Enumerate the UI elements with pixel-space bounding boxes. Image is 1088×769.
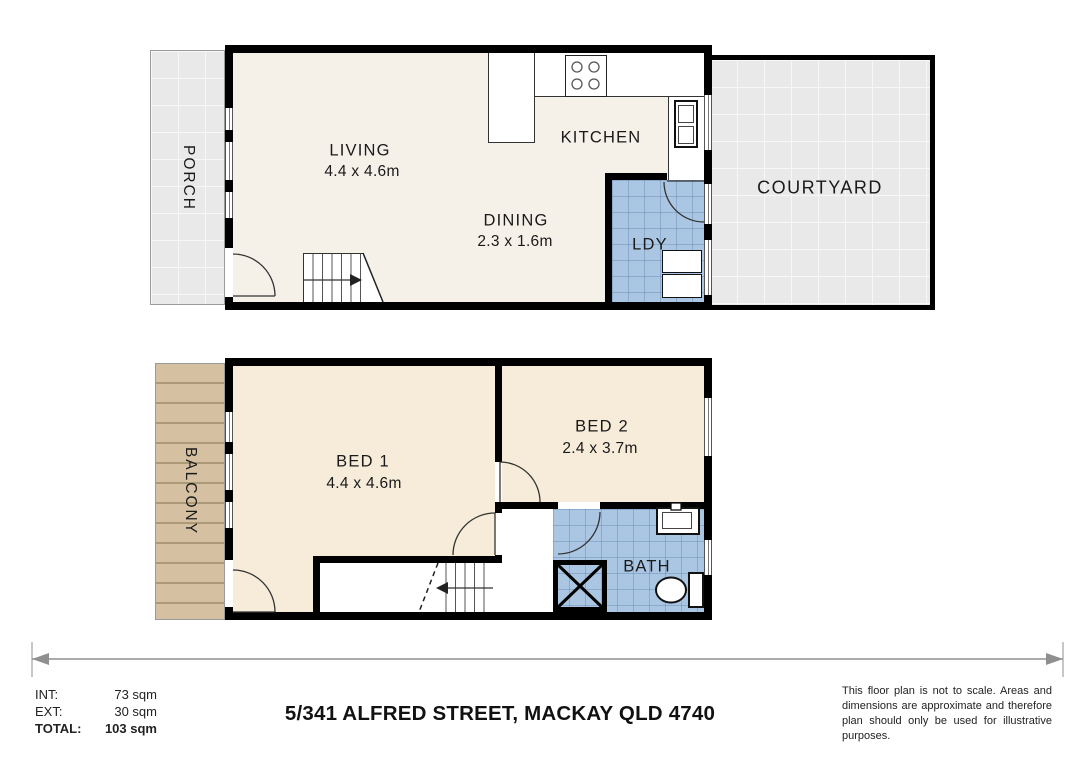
wall xyxy=(225,45,712,53)
area-value: 103 sqm xyxy=(99,720,157,737)
wall xyxy=(495,502,502,513)
area-label: TOTAL: xyxy=(35,720,99,737)
wall xyxy=(704,456,712,540)
window xyxy=(225,192,233,218)
window xyxy=(704,95,712,150)
wall xyxy=(225,358,712,366)
wall xyxy=(502,502,558,509)
hallway xyxy=(497,509,553,612)
area-summary: INT: 73 sqm EXT: 30 sqm TOTAL: 103 sqm xyxy=(35,686,157,737)
area-value: 30 sqm xyxy=(99,703,157,720)
wall xyxy=(704,575,712,620)
door-opening xyxy=(495,513,502,555)
wall xyxy=(704,295,712,310)
dimension-line xyxy=(32,642,1063,677)
window xyxy=(225,142,233,180)
wall xyxy=(225,45,233,108)
wall xyxy=(704,150,712,184)
wall xyxy=(225,442,233,454)
property-address: 5/341 ALFRED STREET, MACKAY QLD 4740 xyxy=(267,702,733,726)
floor-plan-page: PORCH LIVING 4.4 x 4.6m KITCHEN DINING 2… xyxy=(0,0,1088,769)
living-label: LIVING xyxy=(329,142,390,161)
window xyxy=(225,502,233,528)
washer-icon xyxy=(662,250,702,273)
window xyxy=(704,240,712,295)
dining-dims: 2.3 x 1.6m xyxy=(477,233,552,251)
area-value: 73 sqm xyxy=(99,686,157,703)
door-opening xyxy=(558,502,600,509)
wall xyxy=(313,556,497,563)
window xyxy=(225,454,233,490)
wall xyxy=(225,180,233,192)
wall xyxy=(225,490,233,502)
area-row-int: INT: 73 sqm xyxy=(35,686,157,703)
area-row-total: TOTAL: 103 sqm xyxy=(35,720,157,737)
wall xyxy=(704,358,712,398)
wall xyxy=(225,607,233,620)
bath-label: BATH xyxy=(623,558,671,577)
toilet-tank-icon xyxy=(688,572,704,608)
sink-basin xyxy=(678,105,694,123)
dining-label: DINING xyxy=(484,212,549,231)
wall xyxy=(605,178,612,302)
door-opening xyxy=(225,560,233,607)
area-label: EXT: xyxy=(35,703,99,720)
door-opening xyxy=(495,462,502,502)
kitchen-counter xyxy=(488,53,535,143)
balcony-label: BALCONY xyxy=(181,447,199,535)
bed2-label: BED 2 xyxy=(575,418,629,437)
door-opening xyxy=(225,248,233,297)
wall xyxy=(605,173,667,180)
window xyxy=(704,398,712,456)
living-dims: 4.4 x 4.6m xyxy=(324,163,399,181)
bed1-label: BED 1 xyxy=(336,453,390,472)
wall xyxy=(313,556,320,618)
window xyxy=(704,184,712,224)
wall xyxy=(495,366,502,462)
wall xyxy=(225,130,233,142)
wall xyxy=(225,218,233,248)
window xyxy=(225,108,233,130)
window xyxy=(704,540,712,575)
wall xyxy=(225,302,712,310)
stove-icon xyxy=(565,55,607,97)
shower-icon xyxy=(553,560,607,612)
laundry-label: LDY xyxy=(632,236,668,255)
arrow-right-icon xyxy=(1046,653,1063,665)
dryer-icon xyxy=(662,274,702,298)
area-label: INT: xyxy=(35,686,99,703)
bed1-dims: 4.4 x 4.6m xyxy=(326,475,401,493)
wall xyxy=(225,358,233,412)
window xyxy=(225,412,233,442)
kitchen-counter xyxy=(535,53,704,97)
porch-label: PORCH xyxy=(179,145,197,211)
wall xyxy=(225,297,233,310)
wall xyxy=(704,45,712,95)
sink-basin xyxy=(678,126,694,144)
wall xyxy=(704,224,712,240)
staircase xyxy=(303,253,363,302)
stair-treads xyxy=(437,563,493,612)
bed2-dims: 2.4 x 3.7m xyxy=(562,440,637,458)
sink-basin xyxy=(662,512,692,529)
courtyard-label: COURTYARD xyxy=(757,178,883,199)
area-row-ext: EXT: 30 sqm xyxy=(35,703,157,720)
kitchen-label: KITCHEN xyxy=(561,129,642,148)
arrow-left-icon xyxy=(32,653,49,665)
wall xyxy=(225,612,712,620)
wall xyxy=(225,528,233,560)
disclaimer-text: This floor plan is not to scale. Areas a… xyxy=(842,684,1052,744)
